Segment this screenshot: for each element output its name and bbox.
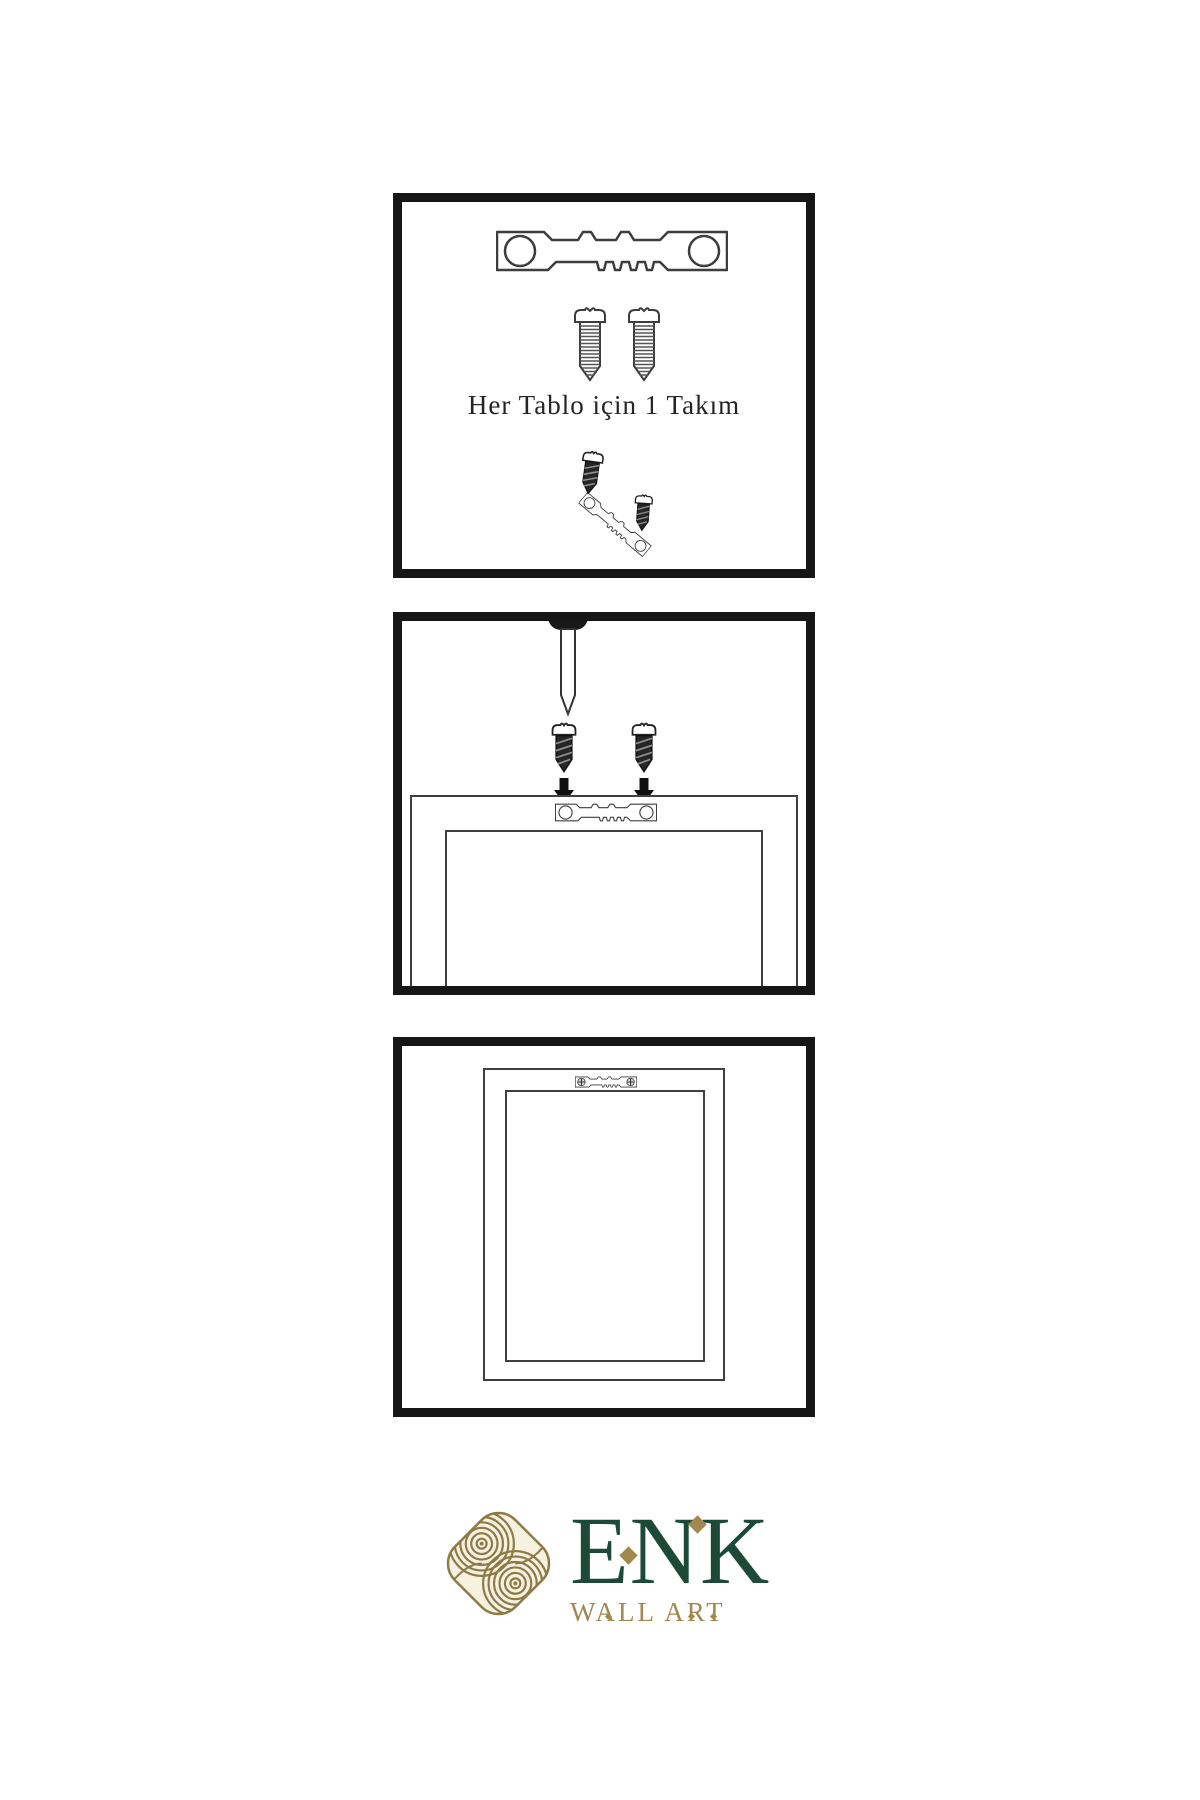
hanger-screwed-icon	[575, 1074, 637, 1090]
sawtooth-hanger-icon	[555, 800, 657, 825]
nail-icon	[545, 615, 591, 719]
brand-name: ENK	[570, 1503, 770, 1599]
dark-screw-icon	[629, 720, 659, 776]
screw-icon	[572, 306, 608, 382]
kit-caption: Her Tablo için 1 Takım	[402, 390, 806, 421]
panel-step-3	[393, 1037, 815, 1417]
instruction-sheet: Her Tablo için 1 Takım	[0, 0, 1200, 1800]
screw-icon	[626, 306, 662, 382]
knot-logo-icon	[437, 1500, 560, 1627]
dark-screw-icon	[549, 720, 579, 776]
panel-step-1: Her Tablo için 1 Takım	[393, 193, 815, 578]
panel-step-2	[393, 612, 815, 995]
frame-back-inner	[445, 830, 763, 995]
dark-screw-icon	[631, 491, 656, 534]
brand-subtitle: WALL ART	[570, 1597, 726, 1628]
sawtooth-hanger-icon	[496, 223, 728, 279]
dark-screw-icon	[575, 446, 608, 499]
mounted-frame-inner	[505, 1090, 705, 1362]
